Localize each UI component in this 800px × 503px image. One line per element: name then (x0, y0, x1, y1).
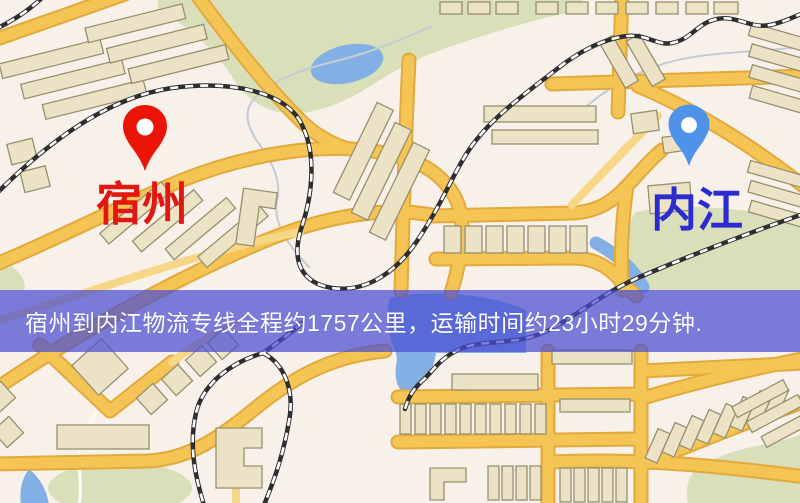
building-row (444, 226, 587, 253)
destination-city-label: 内江 (651, 184, 743, 236)
building (552, 350, 632, 364)
map-canvas: 宿州 内江 (0, 0, 800, 503)
origin-city-label: 宿州 (96, 178, 188, 230)
destination-pin-hole (681, 117, 697, 133)
building (452, 374, 538, 390)
building (57, 425, 149, 449)
building (492, 130, 598, 144)
logistics-route-map: 宿州 内江 宿州到内江物流专线全程约1757公里，运输时间约23小时29分钟. (0, 0, 800, 503)
route-info-banner: 宿州到内江物流专线全程约1757公里，运输时间约23小时29分钟. (0, 290, 800, 352)
route-info-text: 宿州到内江物流专线全程约1757公里，运输时间约23小时29分钟. (25, 304, 702, 338)
building-row (560, 468, 627, 502)
building (631, 110, 660, 133)
origin-pin-hole (137, 119, 154, 136)
building (560, 399, 630, 412)
